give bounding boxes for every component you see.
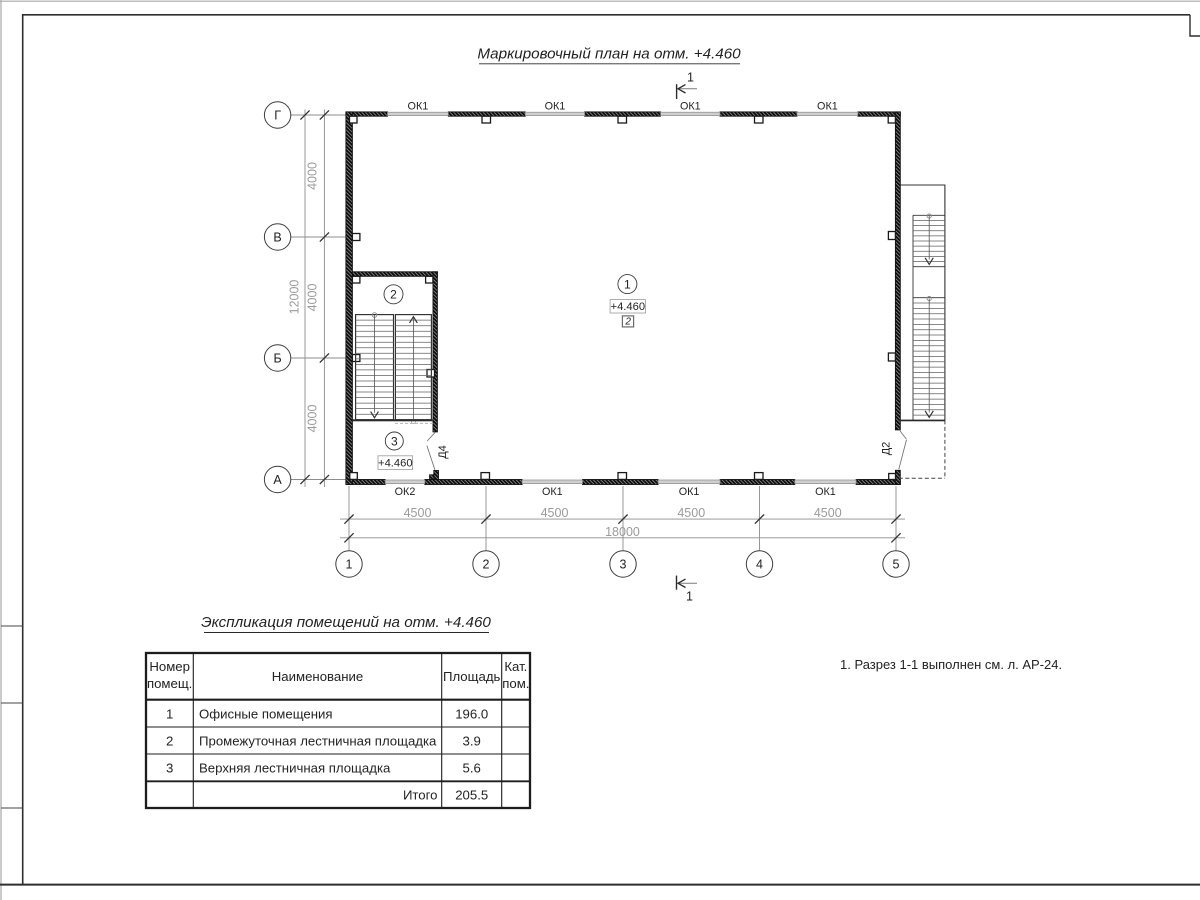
svg-text:В: В [273,231,281,245]
svg-text:4500: 4500 [541,506,569,520]
svg-text:2: 2 [166,733,173,748]
svg-text:1: 1 [686,590,693,604]
svg-text:+4.460: +4.460 [378,457,413,469]
svg-text:Д2: Д2 [880,442,892,456]
svg-text:196.0: 196.0 [455,706,488,721]
svg-text:5.6: 5.6 [463,761,481,776]
svg-text:18000: 18000 [605,525,640,539]
svg-text:Д4: Д4 [437,445,449,459]
svg-text:2: 2 [483,558,490,572]
svg-text:ОК1: ОК1 [815,486,836,498]
svg-text:1: 1 [346,558,353,572]
svg-text:пом.: пом. [502,676,529,691]
svg-text:А: А [273,473,282,487]
svg-text:Экспликация помещений на отм.: Экспликация помещений на отм. +4.460 [201,614,491,631]
svg-text:1: 1 [687,71,694,85]
svg-text:4000: 4000 [306,405,320,433]
svg-text:Маркировочный план на отм. +4.: Маркировочный план на отм. +4.460 [477,46,741,63]
svg-text:ОК1: ОК1 [542,486,563,498]
svg-text:Промежуточная лестничная площа: Промежуточная лестничная площадка [199,733,437,748]
svg-text:Офисные помещения: Офисные помещения [199,706,333,721]
svg-text:помещ.: помещ. [147,676,192,691]
svg-text:Итого: Итого [403,788,438,803]
svg-text:ОК2: ОК2 [395,486,416,498]
svg-text:1: 1 [166,706,173,721]
svg-text:205.5: 205.5 [455,788,488,803]
svg-text:12000: 12000 [288,280,302,315]
svg-text:Б: Б [273,352,281,366]
svg-text:2: 2 [624,317,631,328]
svg-text:4: 4 [756,558,763,572]
svg-text:ОК1: ОК1 [817,100,838,112]
svg-text:Номер: Номер [149,659,190,674]
svg-text:Наименование: Наименование [272,669,363,684]
svg-text:3: 3 [166,761,173,776]
svg-text:4500: 4500 [814,506,842,520]
svg-text:Г: Г [274,109,281,123]
svg-text:Площадь: Площадь [443,669,501,684]
svg-text:4000: 4000 [306,284,320,312]
svg-text:3: 3 [620,558,627,572]
svg-text:+4.460: +4.460 [611,301,646,313]
svg-text:4500: 4500 [677,506,705,520]
svg-text:1: 1 [624,278,631,292]
svg-text:2: 2 [390,288,397,302]
svg-text:Верхняя лестничная площадка: Верхняя лестничная площадка [199,761,391,776]
svg-text:5: 5 [893,558,900,572]
svg-text:ОК1: ОК1 [545,100,566,112]
svg-text:ОК1: ОК1 [679,486,700,498]
svg-text:1. Разрез 1-1 выполнен см. л.: 1. Разрез 1-1 выполнен см. л. АР-24. [840,657,1062,672]
svg-text:3: 3 [391,434,398,448]
svg-text:3.9: 3.9 [463,733,481,748]
svg-text:Кат.: Кат. [504,659,527,674]
svg-text:4500: 4500 [404,506,432,520]
svg-text:ОК1: ОК1 [680,100,701,112]
svg-text:4000: 4000 [306,162,320,190]
svg-text:ОК1: ОК1 [408,100,429,112]
